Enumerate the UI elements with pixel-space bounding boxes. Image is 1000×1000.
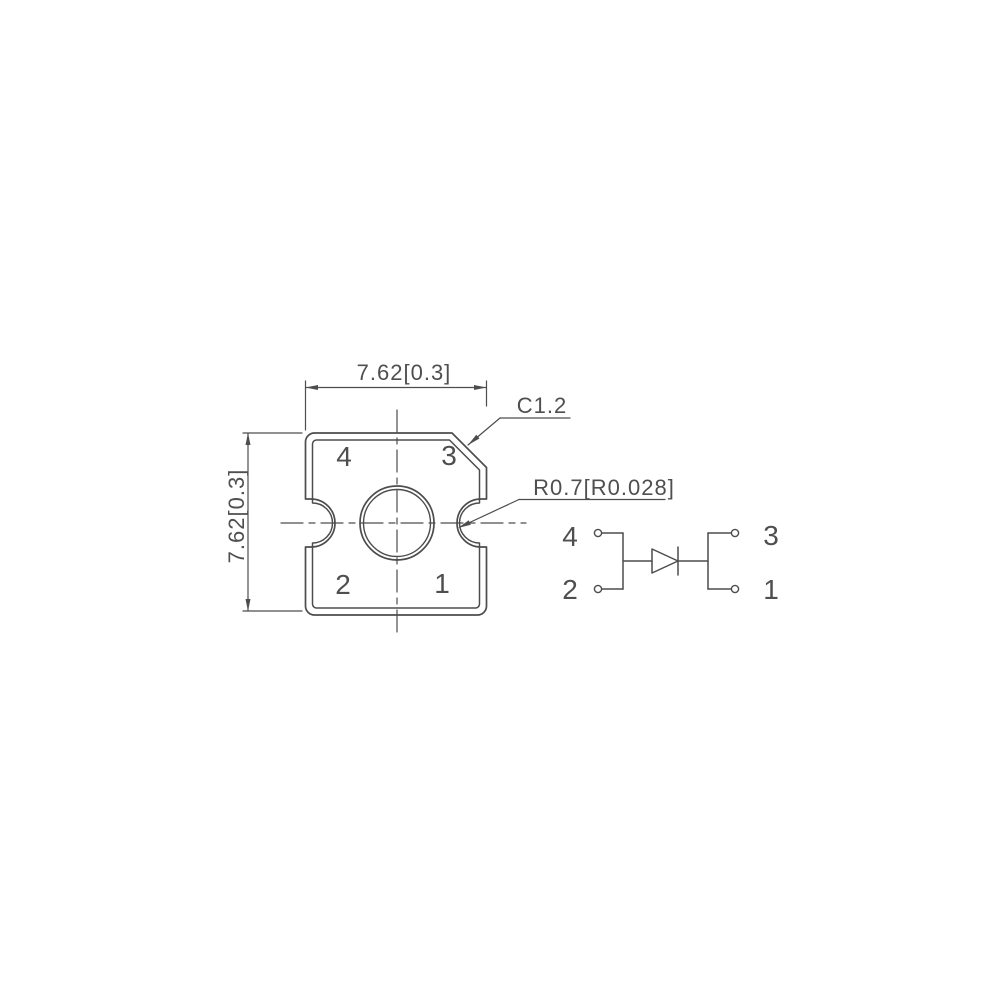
schematic-wires [602, 533, 731, 589]
labels-group: 7.62[0.3] 7.62[0.3] C1.2 R0.7[R0.028] 4 … [224, 360, 779, 605]
pad-label-3: 3 [441, 440, 457, 471]
chamfer-label: C1.2 [517, 393, 567, 418]
radius-label: R0.7[R0.028] [533, 475, 675, 500]
schematic-terminals [594, 529, 738, 592]
left-dim-arrow-top [246, 433, 251, 445]
terminal-pin1 [731, 585, 738, 592]
left-dimension-lines [243, 433, 302, 611]
left-dimension-label: 7.62[0.3] [224, 469, 249, 564]
schematic-pin-label-1: 1 [763, 574, 779, 605]
schematic-pin-label-4: 4 [562, 521, 578, 552]
schematic-pin-label-2: 2 [562, 574, 578, 605]
terminal-pin4 [594, 529, 601, 536]
top-dimension-label: 7.62[0.3] [357, 360, 452, 385]
terminal-pin3 [731, 529, 738, 536]
linework-group [243, 381, 739, 636]
diode-triangle [652, 549, 678, 573]
schematic-pin-label-3: 3 [763, 520, 779, 551]
terminal-pin2 [594, 585, 601, 592]
arrowheads-group [246, 385, 487, 611]
pad-label-2: 2 [335, 569, 351, 600]
top-dimension-lines [306, 381, 487, 430]
technical-drawing: 7.62[0.3] 7.62[0.3] C1.2 R0.7[R0.028] 4 … [0, 0, 1000, 1000]
top-dim-arrow-left [306, 385, 319, 390]
pad-label-4: 4 [336, 441, 352, 472]
top-dim-arrow-right [474, 385, 487, 390]
drawing-canvas: 7.62[0.3] 7.62[0.3] C1.2 R0.7[R0.028] 4 … [0, 0, 1000, 1000]
pad-label-1: 1 [434, 568, 450, 599]
left-dim-arrow-bottom [246, 599, 251, 611]
chamfer-leader [468, 418, 570, 445]
